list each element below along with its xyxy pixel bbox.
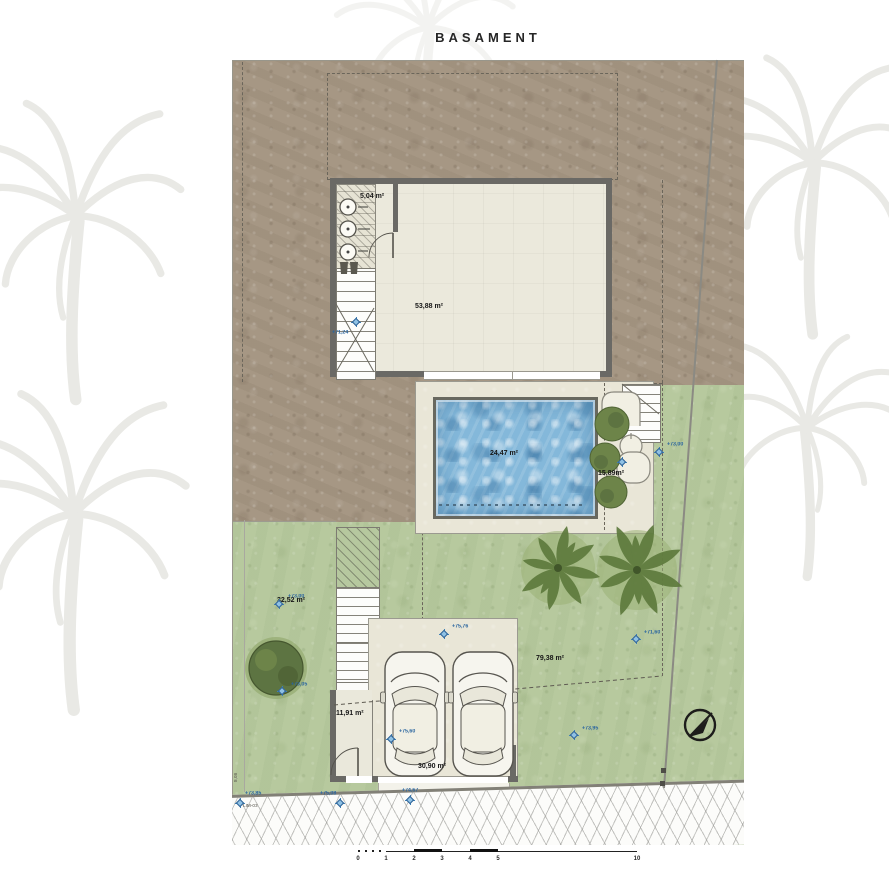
pool-overflow-grate — [439, 504, 586, 506]
site-boundary-top — [232, 60, 744, 61]
mullion — [512, 372, 513, 379]
sliding-glass-door — [424, 371, 600, 380]
floor-plan-sheet: BASAMENT — [0, 0, 889, 895]
scale-tick-label: 1 — [378, 856, 394, 862]
entry-gate-opening — [346, 776, 372, 783]
wall-segment — [393, 178, 398, 232]
wall-segment — [330, 690, 336, 782]
setback-line — [662, 180, 663, 383]
terrace-stairs — [622, 384, 661, 443]
site-plan — [232, 60, 744, 845]
swimming-pool — [433, 397, 598, 519]
setback-line — [242, 62, 243, 382]
scale-tick-label: 10 — [629, 856, 645, 862]
terrain-edge — [232, 521, 336, 522]
interior-stairs — [336, 268, 376, 380]
wall-segment — [330, 776, 346, 782]
building-projection-dashed — [327, 73, 618, 180]
terrace-divider-dashed — [604, 383, 605, 530]
garage-floor — [368, 618, 518, 780]
site-boundary-left — [232, 60, 233, 800]
scale-tick-label: 5 — [490, 856, 506, 862]
wall-segment — [600, 371, 612, 377]
setback-line — [662, 383, 663, 676]
utility-room-floor — [336, 184, 376, 270]
page-title: BASAMENT — [232, 30, 744, 45]
partition-line — [372, 700, 373, 776]
wall-segment — [606, 178, 612, 377]
scale-tick-label: 2 — [406, 856, 422, 862]
site-boundary-left-inner — [244, 520, 245, 792]
scale-tick-label: 3 — [434, 856, 450, 862]
entry-room-floor — [336, 690, 372, 776]
scale-tick-label: 0 — [350, 856, 366, 862]
scale-tick-label: 4 — [462, 856, 478, 862]
exterior-stairs-upper — [336, 527, 380, 589]
dirt-area-left — [232, 385, 415, 522]
wall-segment — [510, 745, 516, 778]
